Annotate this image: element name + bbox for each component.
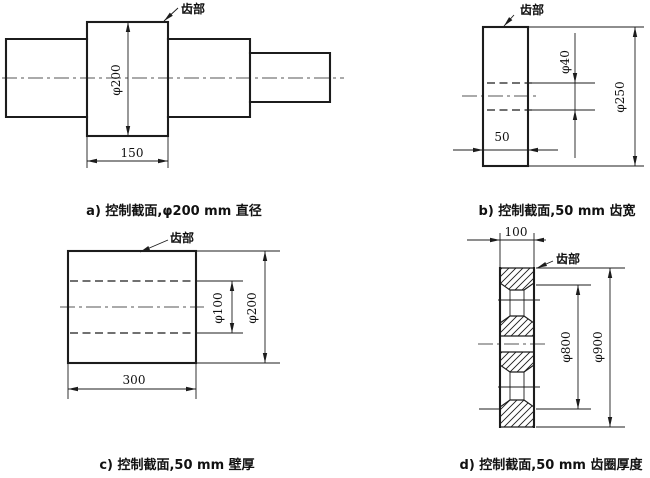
figure-b-caption: b) 控制截面,50 mm 齿宽 [479,203,636,219]
figure-a-dimensions [87,8,178,168]
figure-d-dimensions [467,233,625,427]
figure-b-outer-dim: φ250 [613,81,627,112]
figure-a-width-dim: 150 [121,146,144,160]
figure-a-diameter-dim: φ200 [109,64,123,95]
gear-control-sections-drawing: 齿部 φ200 150 a) 控制截面,φ200 mm 直径 齿部 φ40 φ2… [0,0,650,478]
figure-b-tooth-leader [504,15,514,26]
figure-d-face-width-dim: 100 [505,225,528,239]
figure-d-rim-inner-dim: φ800 [559,331,573,362]
figure-c-caption: c) 控制截面,50 mm 壁厚 [99,457,254,473]
figure-d: 齿部 100 φ800 φ900 d) 控制截面,50 mm 齿圈厚度 [460,225,644,473]
figure-d-rim-top-section [500,268,534,290]
figure-a-geometry [2,22,344,136]
figure-d-caption: d) 控制截面,50 mm 齿圈厚度 [460,457,644,473]
figure-c-length-dim: 300 [123,373,146,387]
figure-c-tooth-label: 齿部 [170,230,194,245]
figure-d-tooth-label: 齿部 [556,251,580,266]
figure-b-bore-hidden-lines [487,83,532,110]
figure-c-bore-dim: φ100 [211,292,225,323]
engineering-drawing-page: 齿部 φ200 150 a) 控制截面,φ200 mm 直径 齿部 φ40 φ2… [0,0,650,478]
figure-b-tooth-label: 齿部 [520,2,544,17]
figure-d-tooth-leader [537,261,553,268]
figure-c-outer-dim: φ200 [245,292,259,323]
figure-c-geometry [60,251,204,363]
figure-d-rim-bottom-section [500,400,534,427]
figure-d-outer-dim: φ900 [591,331,605,362]
figure-c: 齿部 φ100 φ200 300 c) 控制截面,50 mm 壁厚 [60,230,280,473]
figure-d-hub-top-section [500,316,534,336]
figure-d-hub-bottom-section [500,352,534,372]
figure-a-tooth-leader [164,8,178,21]
figure-d-geometry [478,268,545,427]
figure-b-bore-dim: φ40 [558,50,572,74]
figure-b-dimensions [453,15,635,166]
figure-b-face-width-dim: 50 [494,130,509,144]
figure-a-tooth-label: 齿部 [181,1,205,16]
figure-a-caption: a) 控制截面,φ200 mm 直径 [86,203,262,219]
figure-b: 齿部 φ40 φ250 50 b) 控制截面,50 mm 齿宽 [453,2,644,219]
figure-a: 齿部 φ200 150 a) 控制截面,φ200 mm 直径 [2,1,344,219]
